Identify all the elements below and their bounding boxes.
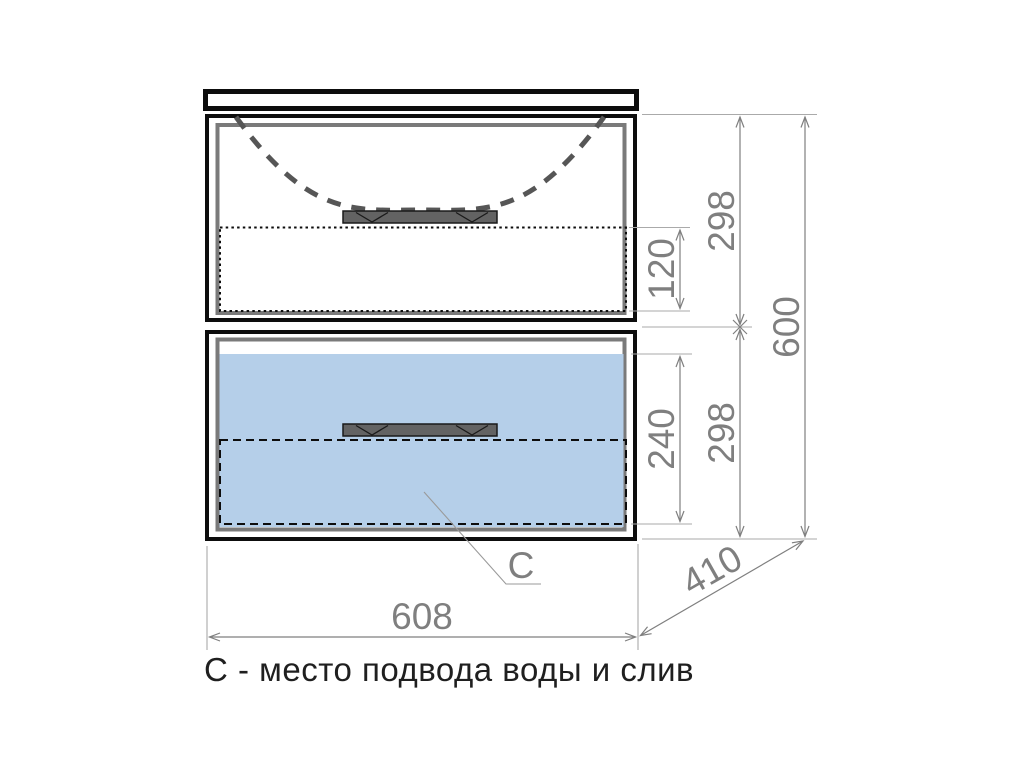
dim-label-410: 410 xyxy=(675,537,749,603)
dim-top-drawer-inner-120: 120 xyxy=(641,230,682,309)
bottom-drawer-handle xyxy=(343,424,497,436)
dim-bottom-drawer-inner-240: 240 xyxy=(641,357,682,522)
top-drawer-handle xyxy=(343,211,497,223)
dim-top-drawer-height-298: 298 xyxy=(701,117,742,325)
technical-drawing-page: 120 298 240 298 600 608 410 xyxy=(0,0,1024,768)
dim-label-298-bottom: 298 xyxy=(701,402,742,464)
top-drawer xyxy=(207,116,635,320)
dim-label-240: 240 xyxy=(641,408,682,470)
dim-label-600: 600 xyxy=(766,296,807,358)
callout-label: С xyxy=(508,545,535,586)
caption: С - место подвода воды и слив xyxy=(204,651,694,688)
dim-overall-height-600: 600 xyxy=(766,117,807,537)
dim-label-120: 120 xyxy=(641,238,682,300)
dim-bottom-drawer-height-298: 298 xyxy=(701,320,747,537)
dim-label-298-top: 298 xyxy=(701,190,742,252)
dim-depth-410: 410 xyxy=(641,537,804,635)
dim-overall-width-608: 608 xyxy=(210,596,636,637)
countertop xyxy=(206,92,637,109)
dim-label-608: 608 xyxy=(391,596,453,637)
cabinet-dimension-drawing: 120 298 240 298 600 608 410 xyxy=(0,0,1024,768)
bottom-drawer xyxy=(207,332,635,539)
